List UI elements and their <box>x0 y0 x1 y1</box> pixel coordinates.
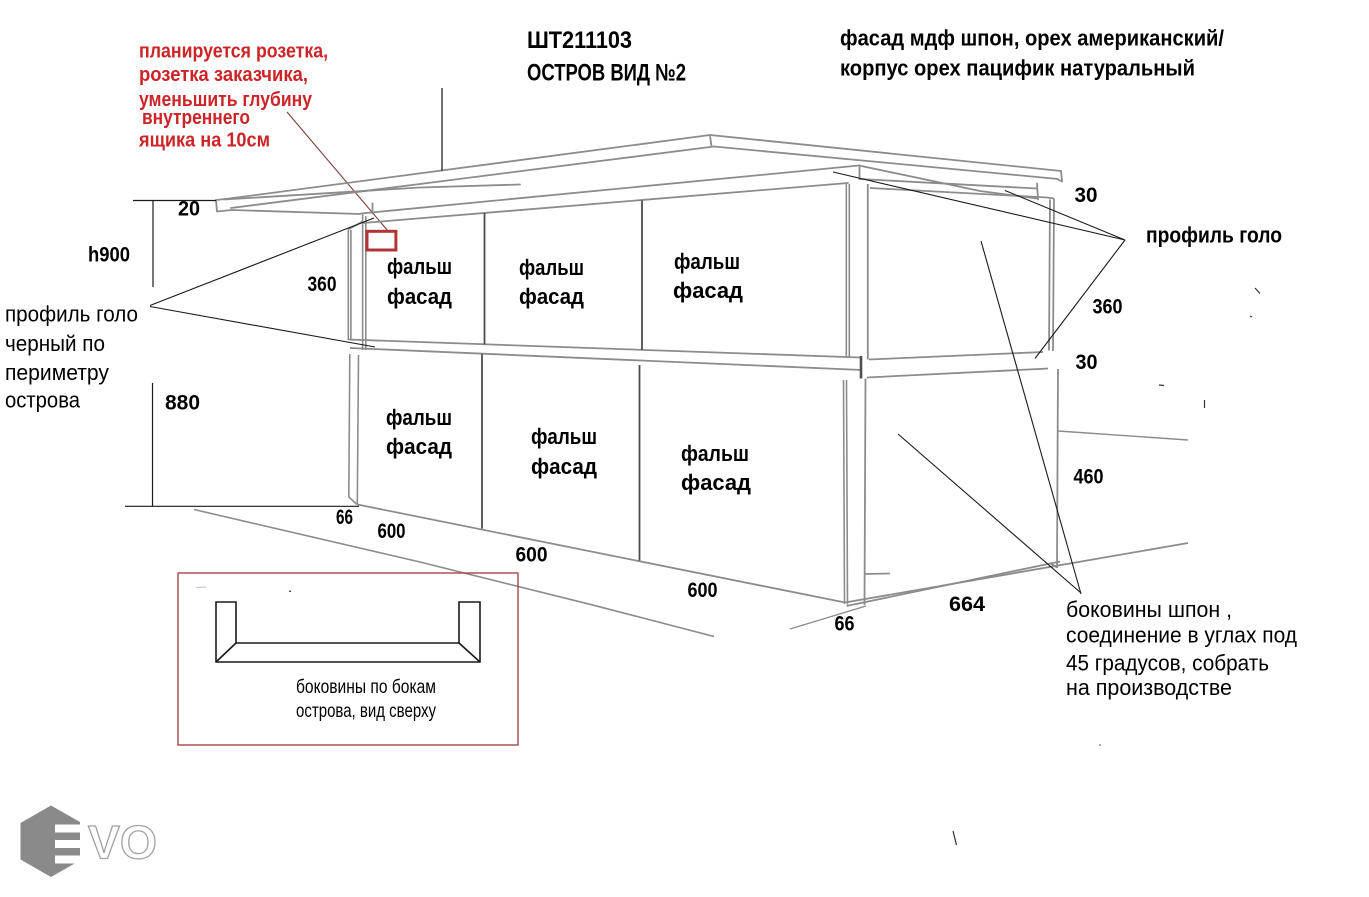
svg-text:фальш: фальш <box>519 255 584 280</box>
svg-text:внутреннего: внутреннего <box>142 107 250 129</box>
svg-text:360: 360 <box>308 272 337 296</box>
svg-text:профиль голо: профиль голо <box>1146 223 1282 248</box>
svg-text:360: 360 <box>1093 295 1123 319</box>
svg-text:VO: VO <box>88 816 157 869</box>
svg-text:600: 600 <box>378 519 406 543</box>
svg-text:ящика на 10см: ящика на 10см <box>138 130 270 152</box>
svg-text:фасад: фасад <box>673 278 743 303</box>
svg-text:45 градусов, собрать: 45 градусов, собрать <box>1066 651 1269 676</box>
svg-text:фальш: фальш <box>674 249 740 274</box>
svg-text:соединение в углах под: соединение в углах под <box>1066 623 1297 648</box>
svg-text:фасад: фасад <box>386 434 452 459</box>
svg-text:664: 664 <box>949 592 985 616</box>
svg-text:ОСТРОВ ВИД №2: ОСТРОВ ВИД №2 <box>527 60 686 87</box>
svg-text:30: 30 <box>1075 183 1098 207</box>
svg-text:600: 600 <box>688 578 718 602</box>
svg-text:фальш: фальш <box>681 441 749 466</box>
svg-text:фасад: фасад <box>519 284 584 309</box>
svg-text:корпус орех пацифик натуральны: корпус орех пацифик натуральный <box>840 56 1195 81</box>
svg-text:фальш: фальш <box>386 405 452 430</box>
svg-text:h900: h900 <box>88 243 130 267</box>
svg-text:фальш: фальш <box>387 254 452 279</box>
svg-text:460: 460 <box>1074 465 1104 489</box>
svg-text:фасад мдф шпон, орех американс: фасад мдф шпон, орех американский/ <box>840 26 1224 51</box>
svg-text:фальш: фальш <box>531 424 597 449</box>
svg-text:черный по: черный по <box>5 331 105 356</box>
svg-text:ШТ211103: ШТ211103 <box>527 27 632 54</box>
svg-text:фасад: фасад <box>531 454 597 479</box>
svg-text:66: 66 <box>835 612 855 636</box>
svg-text:острова, вид сверху: острова, вид сверху <box>296 700 436 722</box>
svg-text:боковины по бокам: боковины по бокам <box>296 676 436 698</box>
svg-text:20: 20 <box>178 197 200 221</box>
svg-text:периметру: периметру <box>5 360 109 385</box>
svg-text:профиль голо: профиль голо <box>5 302 138 327</box>
svg-text:880: 880 <box>165 391 200 415</box>
svg-text:66: 66 <box>336 505 353 529</box>
svg-text:600: 600 <box>516 543 548 567</box>
svg-text:на производстве: на производстве <box>1066 675 1232 700</box>
svg-text:боковины шпон ,: боковины шпон , <box>1066 597 1232 622</box>
svg-text:фасад: фасад <box>387 284 452 309</box>
svg-text:фасад: фасад <box>681 470 751 495</box>
svg-text:30: 30 <box>1076 350 1098 374</box>
svg-text:острова: острова <box>5 388 81 413</box>
svg-text:розетка заказчика,: розетка заказчика, <box>139 64 308 86</box>
svg-text:планируется розетка,: планируется розетка, <box>139 41 328 63</box>
